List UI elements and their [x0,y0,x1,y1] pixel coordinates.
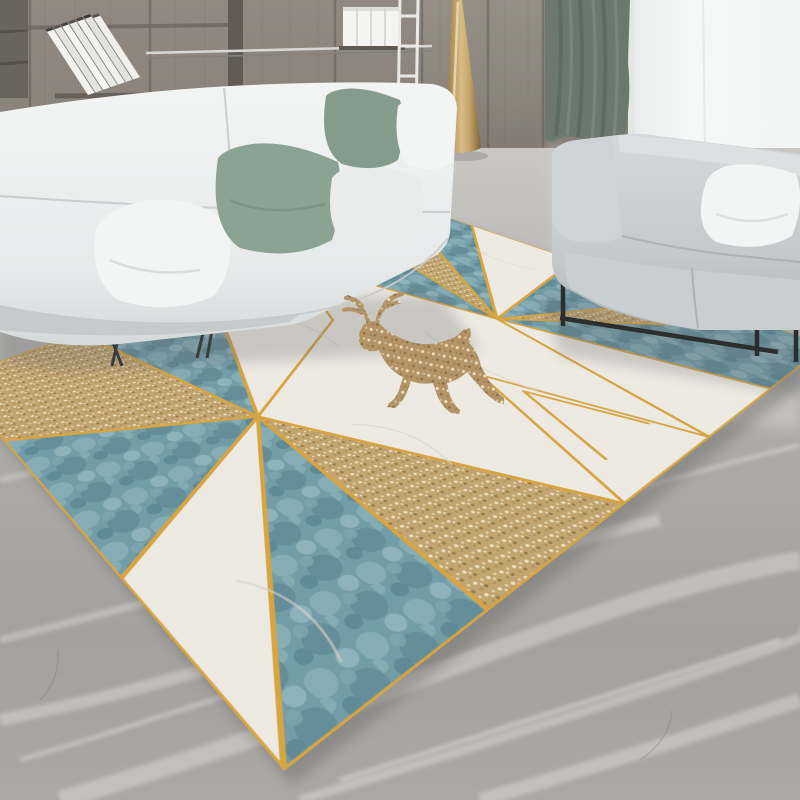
loveseat-arm [552,137,622,243]
pillow-white-right [397,100,456,169]
pillow-white-left [94,200,230,308]
foreground-layer [0,0,800,800]
living-room-photo [0,0,800,800]
loveseat-pillow [701,164,800,247]
pillow-gray-mid [330,165,423,250]
pillow-green-left [216,143,341,253]
pillow-green-right [324,88,404,168]
